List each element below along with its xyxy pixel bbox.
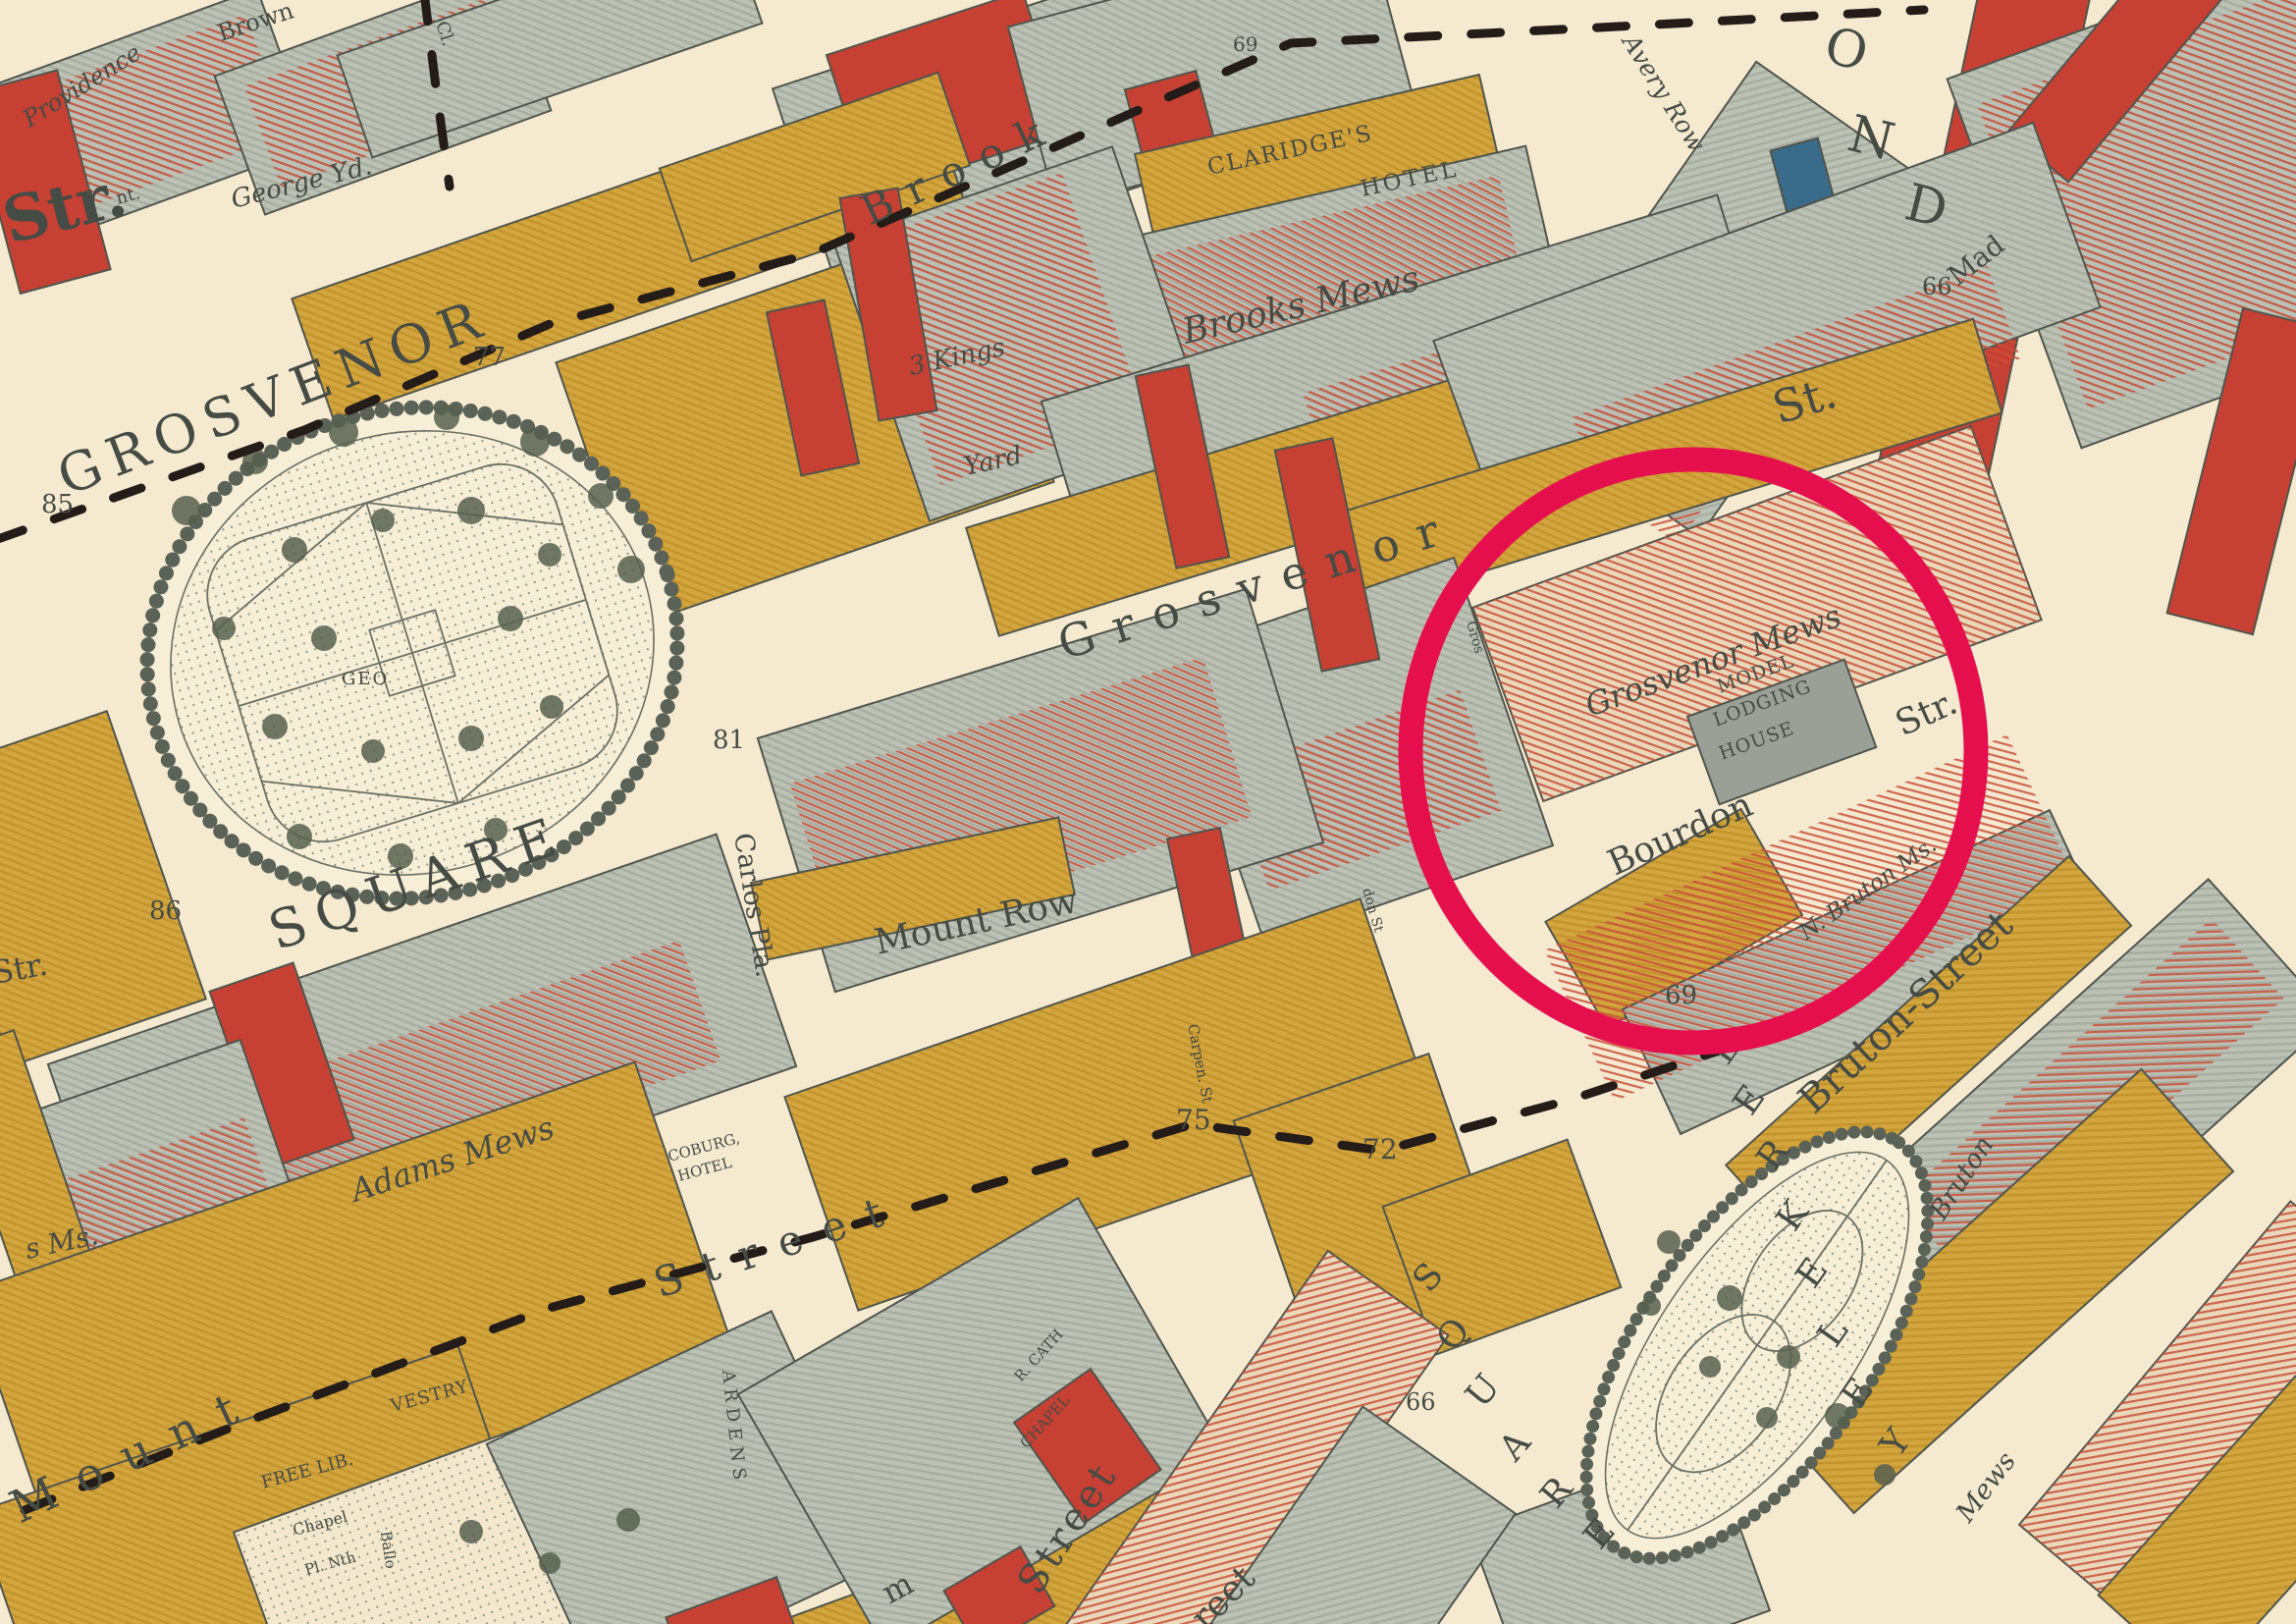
map-canvas[interactable]: Str. Providence Brown nt. George Yd. Cl.… [0,0,2296,1624]
house-number-66-top: 66 [1922,273,1952,300]
statue-label-geo: GEO [342,669,389,689]
house-number-72: 72 [1362,1133,1398,1165]
house-number-66-berkeley: 66 [1406,1388,1436,1416]
house-number-86: 86 [149,896,182,926]
house-number-69: 69 [1665,981,1697,1010]
house-number-75: 75 [1176,1104,1211,1136]
house-number-69-top: 69 [1233,32,1257,56]
house-number-81: 81 [713,726,745,755]
